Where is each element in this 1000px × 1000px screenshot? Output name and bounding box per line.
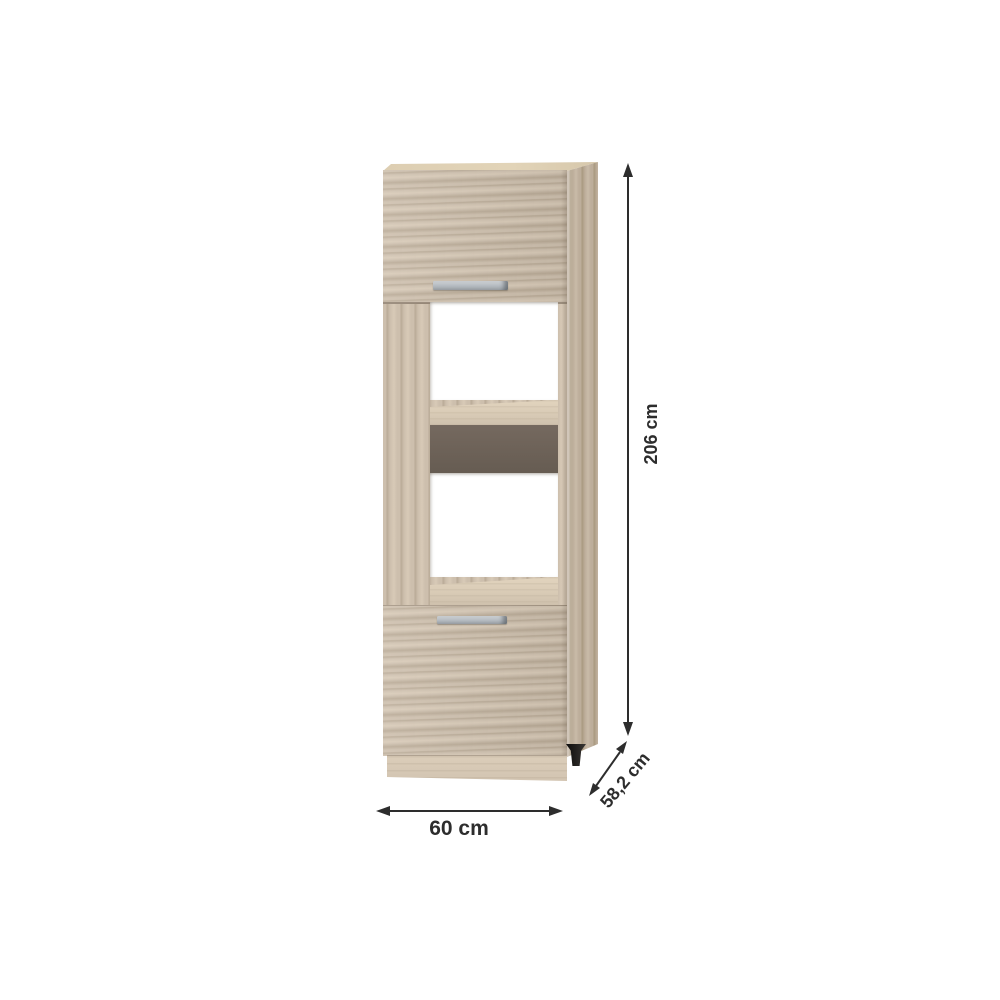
cabinet-front-frame (383, 170, 567, 755)
bottom-door-handle (437, 616, 507, 624)
top-door-handle (433, 281, 508, 290)
width-dimension-label: 60 cm (409, 817, 509, 841)
width-dimension-arrow (376, 806, 563, 816)
cabinet (383, 157, 598, 787)
lower-open-compartment (430, 473, 558, 577)
upper-open-compartment (430, 302, 558, 400)
height-dimension-label: 206 cm (641, 394, 661, 474)
bottom-door (383, 605, 567, 756)
back-panel-strip (430, 425, 558, 475)
height-dimension-arrow (623, 163, 633, 736)
plinth (387, 755, 567, 782)
product-image: 206 cm 60 cm 58,2 cm (0, 0, 1000, 1000)
depth-dimension-label: 58,2 cm (592, 743, 659, 817)
lower-shelf-surface (430, 577, 558, 607)
middle-shelf-surface (430, 400, 558, 425)
cabinet-side-panel (567, 162, 598, 762)
